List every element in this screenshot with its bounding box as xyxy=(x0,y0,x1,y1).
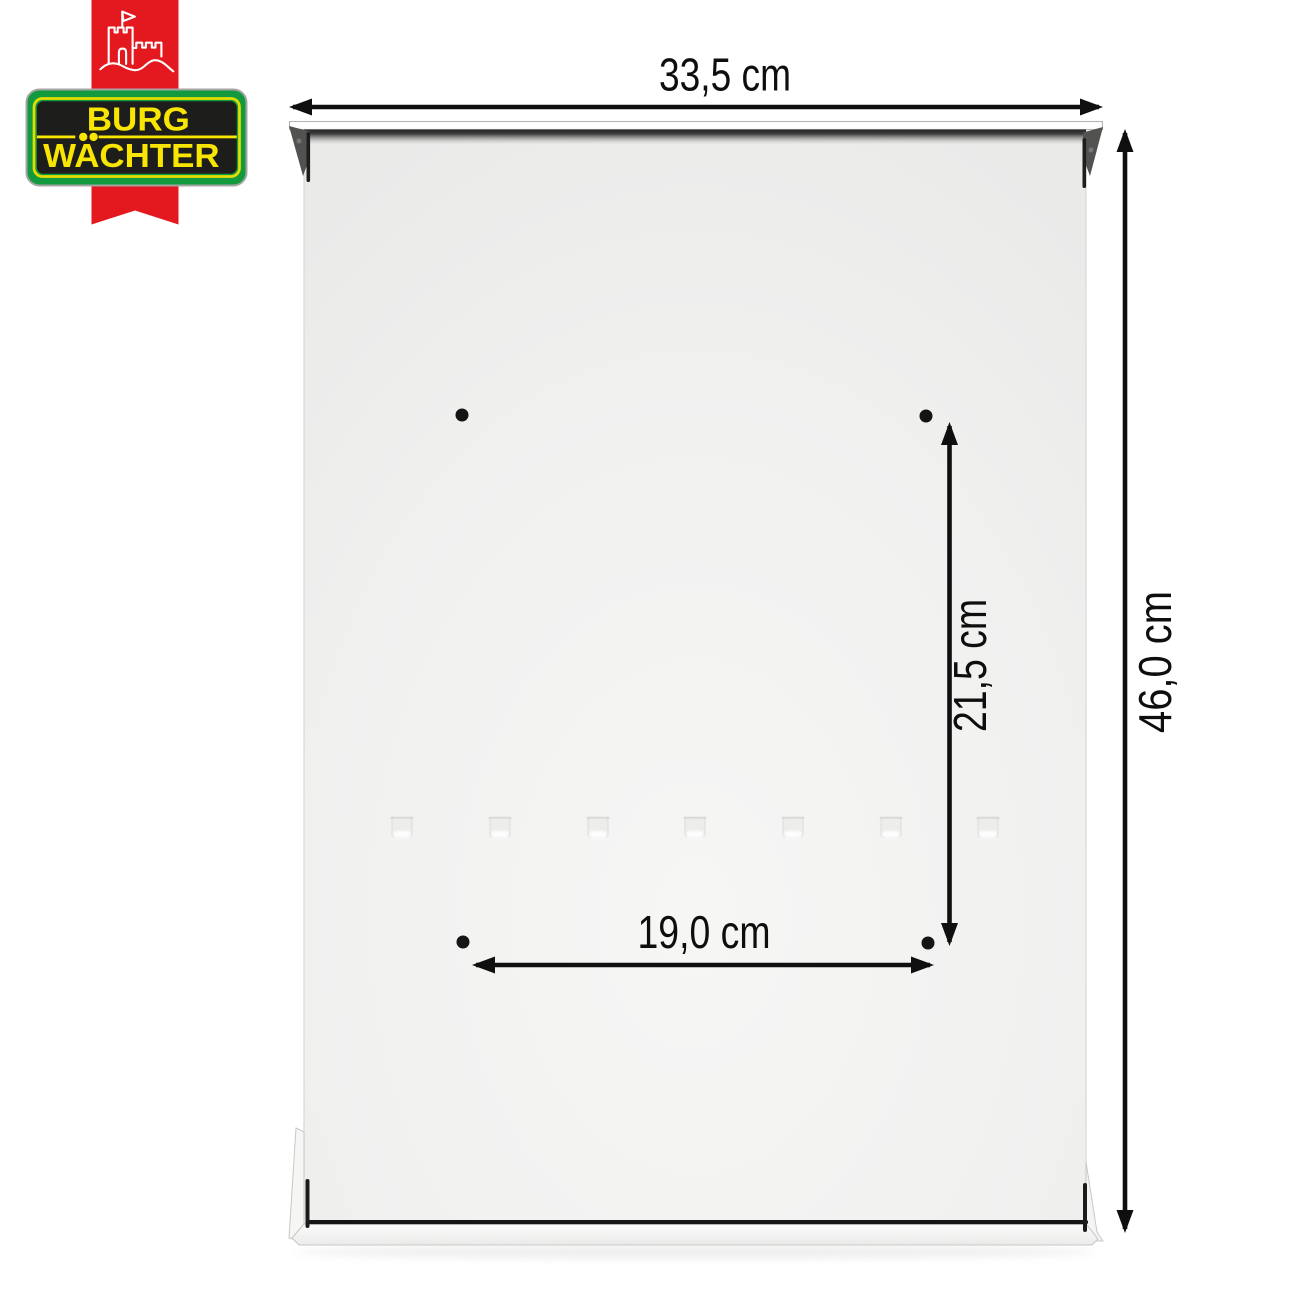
svg-text:33,5 cm: 33,5 cm xyxy=(659,49,791,101)
svg-text:WACHTER: WACHTER xyxy=(43,137,220,174)
svg-text:BURG: BURG xyxy=(87,101,190,138)
svg-text:46,0 cm: 46,0 cm xyxy=(1129,591,1181,733)
svg-text:19,0 cm: 19,0 cm xyxy=(638,906,771,958)
svg-text:21,5 cm: 21,5 cm xyxy=(944,599,996,732)
